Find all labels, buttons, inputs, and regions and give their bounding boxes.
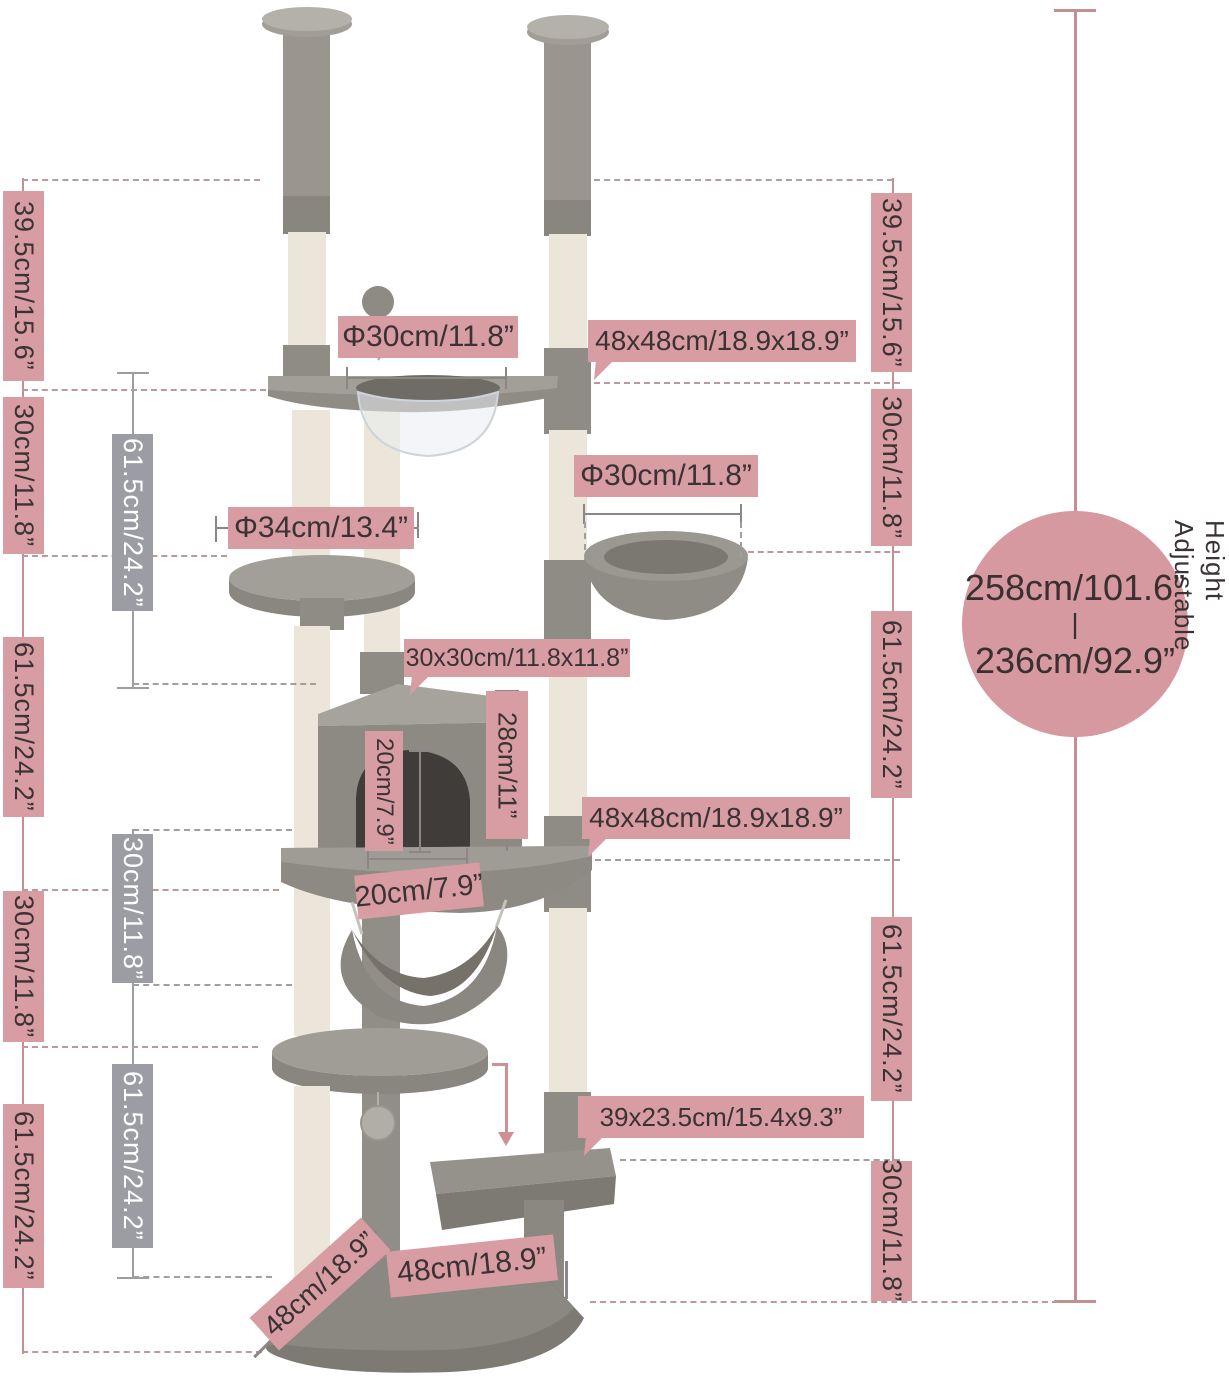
lower-perch (272, 1028, 488, 1094)
left-inner-cap-top (117, 372, 149, 374)
round-perch-tick-right (417, 512, 419, 538)
top-perch-diameter-label: Φ30cm/11.8” (338, 316, 518, 358)
hanging-basket (584, 531, 748, 620)
total-height-cap-bottom (1054, 1300, 1096, 1303)
condo-footprint-label: 30x30cm/11.8x11.8” (404, 639, 630, 677)
basket-diameter-label: Φ30cm/11.8” (574, 455, 758, 497)
right-dim-ceiling-pole: 39.5cm/15.6” (871, 193, 912, 372)
door-width-line (368, 858, 468, 860)
basket-bracket (584, 513, 742, 515)
door-height-tick-top (409, 750, 431, 752)
pompom-ball-top (362, 286, 394, 318)
right-dim-step-gap: 61.5cm/24.2” (871, 917, 912, 1101)
dash-right-basket (748, 551, 900, 553)
step-size-label: 39x23.5cm/15.4x9.3” (578, 1096, 864, 1138)
basket-tick-left (583, 504, 585, 524)
condo-footprint-text: 30x30cm/11.8x11.8” (406, 644, 629, 673)
right-dim-base-gap: 30cm/11.8” (871, 1161, 912, 1301)
height-range-badge: 258cm/101.6” | 236cm/92.9” (962, 511, 1188, 737)
right-dim-basket-gap: 30cm/11.8” (871, 389, 912, 546)
door-height-tick-bottom (409, 851, 431, 853)
top-perch-bracket (347, 377, 507, 379)
basket-tick-right (740, 504, 742, 524)
round-perch-diameter-label: Φ34cm/13.4” (228, 507, 414, 549)
min-height-text: 236cm/92.9” (975, 640, 1175, 681)
right-dim-mid-gap: 61.5cm/24.2” (871, 611, 912, 798)
left-inner-dim-2: 30cm/11.8” (112, 834, 153, 983)
step-size-text: 39x23.5cm/15.4x9.3” (600, 1102, 843, 1133)
base-front-tick-right (565, 1261, 568, 1299)
left-dim-mid-gap: 61.5cm/24.2” (3, 637, 44, 817)
top-perch-tick-right (505, 367, 507, 389)
left-dim-lower-gap: 61.5cm/24.2” (3, 1104, 44, 1288)
basket-dash-right (740, 522, 742, 558)
dash-right-step (620, 1159, 900, 1161)
total-height-cap-top (1054, 9, 1096, 12)
dash-left-top-platform (22, 389, 266, 391)
height-range-divider: | (1071, 608, 1078, 640)
door-height-line (419, 751, 421, 853)
height-adjustable-note: Height Adjustable (1168, 520, 1229, 730)
dash-right-ceiling (594, 179, 893, 181)
condo-height-label: 28cm/11” (486, 691, 528, 839)
dash-left-floor (22, 1351, 262, 1353)
round-perch-tick-left (215, 516, 217, 542)
left-inner-cap-mid (117, 687, 149, 689)
max-height-text: 258cm/101.6” (965, 567, 1185, 608)
door-height-label: 20cm/7.9” (365, 731, 403, 851)
dash-left-ceiling (22, 179, 260, 181)
dash-condo-top (133, 683, 316, 685)
left-dim-platform-gap: 30cm/11.8” (3, 891, 44, 1042)
step-arrow-head (498, 1132, 514, 1146)
dash-right-top-platform (594, 382, 900, 384)
top-platform-size-text: 48x48cm/18.9x18.9” (595, 325, 849, 357)
main-platform-size-label: 48x48cm/18.9x18.9” (582, 797, 850, 839)
dash-right-main-platform (595, 859, 900, 861)
top-perch-tick-left (346, 367, 348, 389)
dash-condo-bottom (133, 829, 292, 831)
top-platform-size-label: 48x48cm/18.9x18.9” (588, 320, 856, 362)
dash-left-lower-perch (22, 1046, 258, 1048)
left-dim-ceiling-pole: 39.5cm/15.6” (3, 191, 44, 381)
dash-left-hammock (133, 984, 292, 986)
main-platform-size-text: 48x48cm/18.9x18.9” (589, 802, 843, 834)
dash-right-base (590, 1301, 1058, 1303)
diagram-canvas: 39.5cm/15.6” 30cm/11.8” 61.5cm/24.2” 30c… (0, 0, 1229, 1382)
step-arrow-vertical (505, 1063, 508, 1133)
dash-left-base-top (133, 1276, 272, 1278)
left-dim-top-gap: 30cm/11.8” (3, 397, 44, 554)
hanging-pompom (361, 1106, 395, 1140)
left-inner-dim-3: 61.5cm/24.2” (112, 1064, 153, 1248)
basket-dash-left (584, 522, 586, 550)
left-inner-dim-1: 61.5cm/24.2” (112, 434, 153, 611)
